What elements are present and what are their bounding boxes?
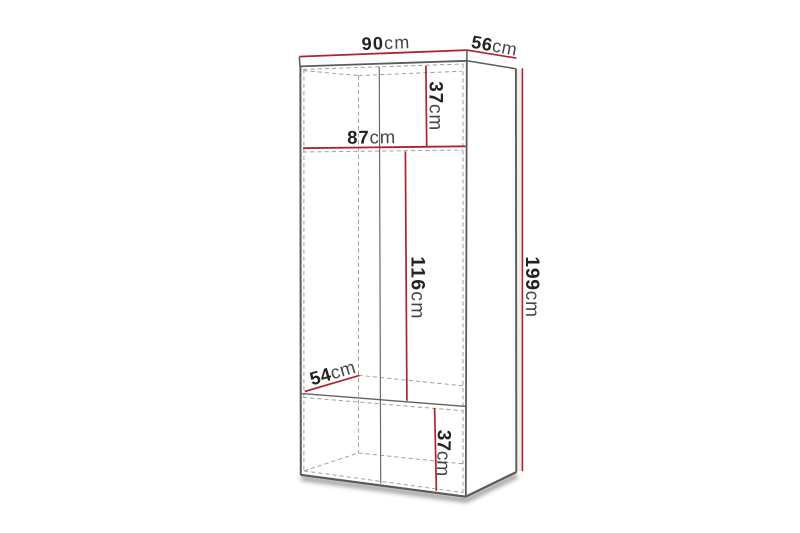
svg-text:116cm: 116cm <box>406 256 428 319</box>
svg-text:87cm: 87cm <box>347 126 396 148</box>
svg-text:37cm: 37cm <box>424 81 445 131</box>
svg-text:199cm: 199cm <box>521 256 542 317</box>
svg-text:90cm: 90cm <box>361 32 411 54</box>
svg-text:37cm: 37cm <box>432 429 454 476</box>
